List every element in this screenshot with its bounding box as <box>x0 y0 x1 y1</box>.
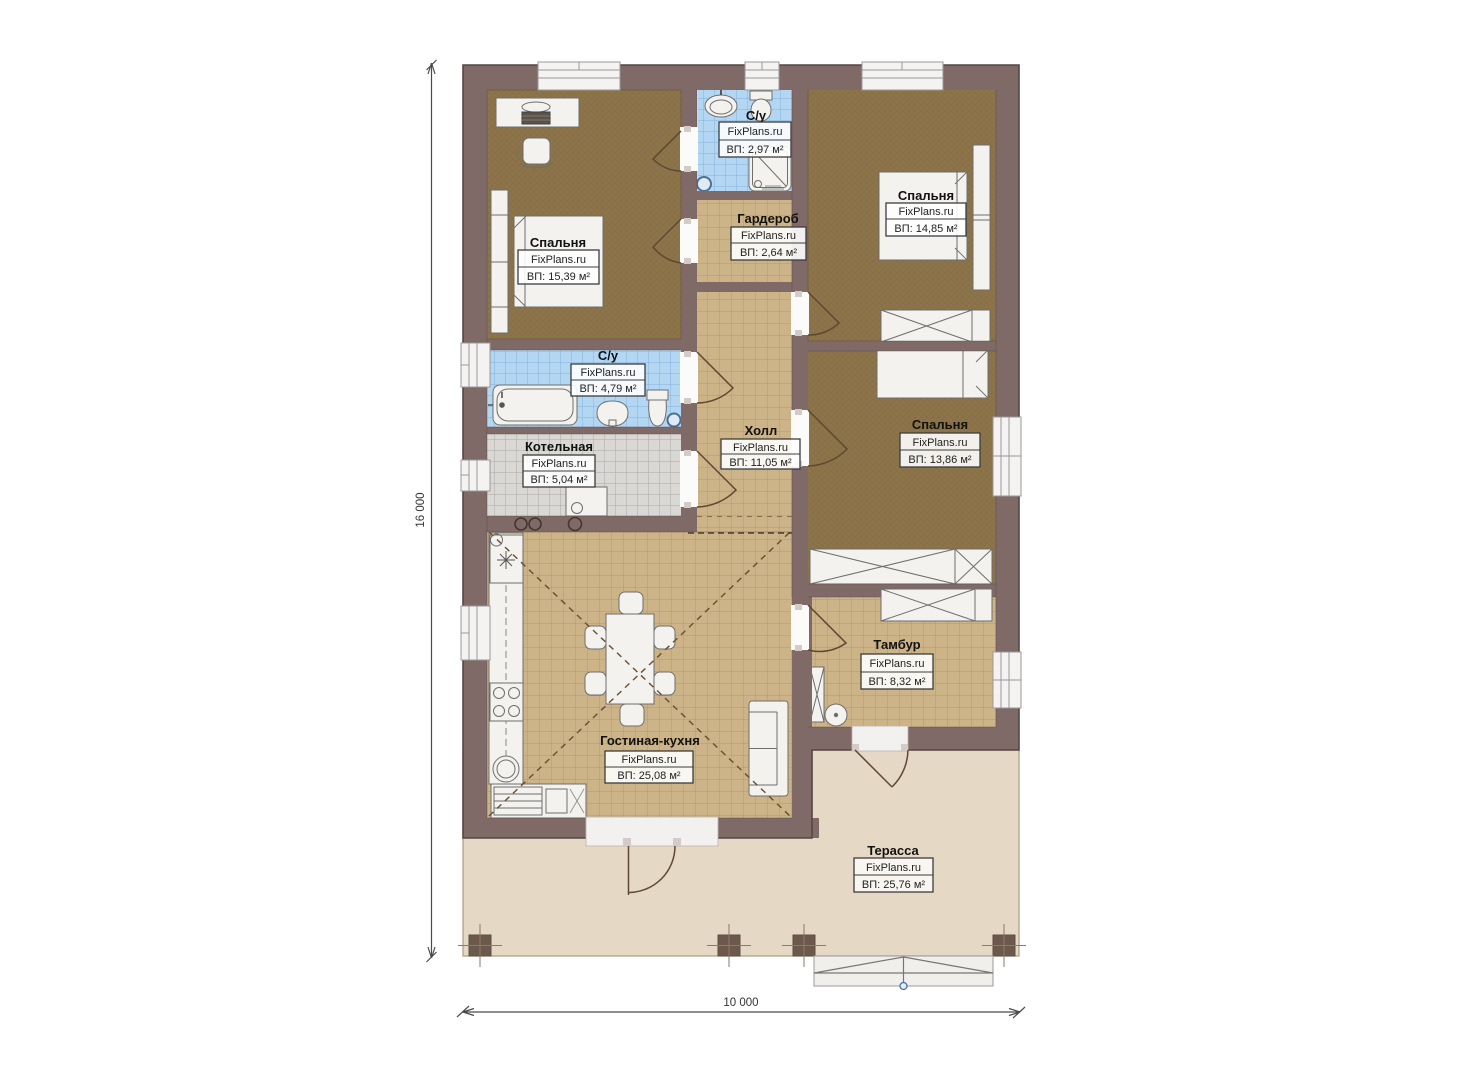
svg-text:10 000: 10 000 <box>723 997 758 1009</box>
svg-text:FixPlans.ru: FixPlans.ru <box>580 367 635 379</box>
svg-text:ВП: 11,05 м²: ВП: 11,05 м² <box>729 457 792 469</box>
svg-text:FixPlans.ru: FixPlans.ru <box>866 862 921 874</box>
svg-text:FixPlans.ru: FixPlans.ru <box>869 658 924 670</box>
svg-text:FixPlans.ru: FixPlans.ru <box>733 442 788 454</box>
svg-text:16 000: 16 000 <box>415 492 427 527</box>
svg-text:Спальня: Спальня <box>912 417 968 432</box>
svg-text:ВП: 2,97 м²: ВП: 2,97 м² <box>726 144 783 156</box>
svg-text:С/у: С/у <box>598 348 619 363</box>
svg-text:ВП: 5,04 м²: ВП: 5,04 м² <box>530 474 587 486</box>
svg-text:ВП: 25,76 м²: ВП: 25,76 м² <box>862 879 926 891</box>
svg-text:ВП: 25,08 м²: ВП: 25,08 м² <box>617 770 681 782</box>
svg-text:FixPlans.ru: FixPlans.ru <box>531 254 586 266</box>
svg-text:ВП: 13,86 м²: ВП: 13,86 м² <box>908 454 972 466</box>
svg-text:ВП: 15,39 м²: ВП: 15,39 м² <box>527 271 591 283</box>
svg-text:ВП: 4,79 м²: ВП: 4,79 м² <box>579 383 636 395</box>
svg-text:ВП: 2,64 м²: ВП: 2,64 м² <box>740 247 797 259</box>
svg-text:ВП: 8,32 м²: ВП: 8,32 м² <box>868 676 925 688</box>
svg-text:Терасса: Терасса <box>867 843 919 858</box>
svg-text:FixPlans.ru: FixPlans.ru <box>727 126 782 138</box>
svg-text:Холл: Холл <box>745 423 778 438</box>
svg-text:FixPlans.ru: FixPlans.ru <box>621 754 676 766</box>
svg-text:ВП: 14,85 м²: ВП: 14,85 м² <box>894 223 958 235</box>
svg-text:FixPlans.ru: FixPlans.ru <box>898 206 953 218</box>
svg-text:Гардероб: Гардероб <box>737 211 798 226</box>
svg-text:FixPlans.ru: FixPlans.ru <box>531 458 586 470</box>
svg-text:FixPlans.ru: FixPlans.ru <box>741 230 796 242</box>
svg-text:С/у: С/у <box>746 108 767 123</box>
svg-text:Тамбур: Тамбур <box>873 637 920 652</box>
svg-text:FixPlans.ru: FixPlans.ru <box>912 437 967 449</box>
svg-text:Спальня: Спальня <box>530 235 586 250</box>
svg-text:Гостиная-кухня: Гостиная-кухня <box>600 733 700 748</box>
svg-text:Котельная: Котельная <box>525 439 593 454</box>
svg-text:Спальня: Спальня <box>898 188 954 203</box>
